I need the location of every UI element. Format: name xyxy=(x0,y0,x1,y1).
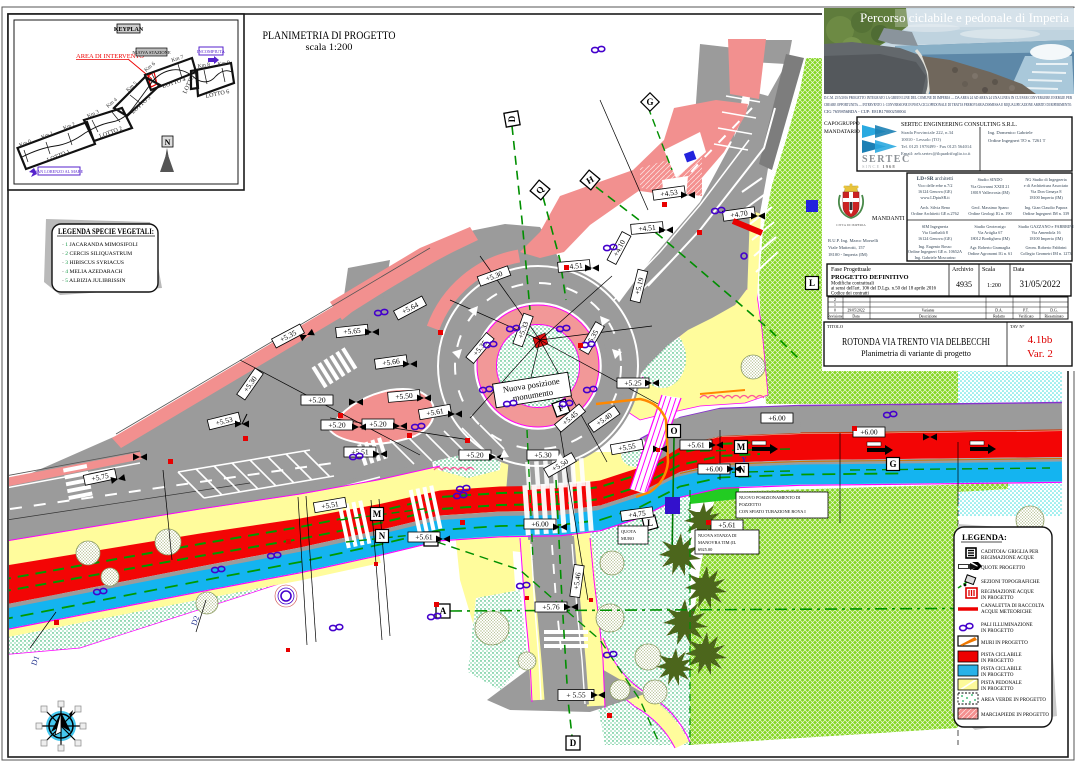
svg-text:Geom. Roberto Fabbrini: Geom. Roberto Fabbrini xyxy=(1025,245,1067,250)
svg-text:Var. 2: Var. 2 xyxy=(1027,348,1053,360)
svg-text:CON SFIATO TUBAZIONE ROYA I: CON SFIATO TUBAZIONE ROYA I xyxy=(739,509,806,514)
svg-text:Via Amendola 16: Via Amendola 16 xyxy=(1031,230,1060,235)
svg-text:www.LDpiuSR.it: www.LDpiuSR.it xyxy=(920,195,950,200)
svg-text:+5.20: +5.20 xyxy=(369,420,387,429)
svg-text:MANDATARIO: MANDATARIO xyxy=(824,129,860,135)
svg-text:POZZETTO: POZZETTO xyxy=(739,502,761,507)
svg-text:+6.00: +6.00 xyxy=(768,414,786,423)
svg-text:18012 Bordighera (IM): 18012 Bordighera (IM) xyxy=(970,236,1010,241)
svg-text:M: M xyxy=(373,509,382,519)
svg-text:e di Architettura Associato: e di Architettura Associato xyxy=(1024,183,1069,188)
svg-text:IN PROGETTO: IN PROGETTO xyxy=(981,687,1014,692)
svg-text:MURO: MURO xyxy=(621,536,634,541)
svg-text:29/05/2022: 29/05/2022 xyxy=(847,309,864,313)
svg-text:AREA VERDE IN PROGETTO: AREA VERDE IN PROGETTO xyxy=(981,698,1046,703)
svg-text:Ing. Domenico Gabriele: Ing. Domenico Gabriele xyxy=(988,130,1033,135)
svg-text:Ordine Ingegneri GE n. 10652A: Ordine Ingegneri GE n. 10652A xyxy=(908,249,962,254)
svg-text:+5.20: +5.20 xyxy=(328,421,346,430)
svg-text:Data: Data xyxy=(1013,267,1025,273)
svg-text:scala 1:200: scala 1:200 xyxy=(306,42,354,52)
svg-text:1: 1 xyxy=(834,303,836,307)
svg-text:L: L xyxy=(809,278,815,288)
svg-text:Studio GAZZANO e FABBRINI: Studio GAZZANO e FABBRINI xyxy=(1018,224,1074,229)
svg-text:NUOVO POSIZIONAMENTO DI: NUOVO POSIZIONAMENTO DI xyxy=(739,495,801,500)
svg-text:Y: Y xyxy=(741,456,746,464)
svg-text:PISTA CICLABILE: PISTA CICLABILE xyxy=(981,653,1022,658)
svg-text:Vico delle erbe n.7/2: Vico delle erbe n.7/2 xyxy=(918,183,953,188)
svg-text:INCOMPIUTA: INCOMPIUTA xyxy=(197,49,226,54)
svg-text:Archivio: Archivio xyxy=(952,267,973,273)
svg-text:R.U.P. Ing. Marco Morselli: R.U.P. Ing. Marco Morselli xyxy=(828,238,879,243)
svg-text:NUOVA STANZA DI: NUOVA STANZA DI xyxy=(698,533,737,538)
svg-text:P.T.: P.T. xyxy=(1023,309,1029,313)
svg-text:CITTA DI IMPERIA: CITTA DI IMPERIA xyxy=(836,223,866,227)
svg-text:SINCE 1968: SINCE 1968 xyxy=(862,164,896,169)
svg-text:Via Giovanni XXIII 21: Via Giovanni XXIII 21 xyxy=(971,184,1010,189)
svg-text:Ordine Ingegneri IM n. 339: Ordine Ingegneri IM n. 339 xyxy=(1023,211,1069,216)
svg-text:D: D xyxy=(507,115,517,122)
svg-text:+5.76: +5.76 xyxy=(542,603,560,612)
svg-text:SERTEC ENGINEERING CONSULTIN: SERTEC ENGINEERING CONSULTING S.R.L. xyxy=(901,121,1017,128)
svg-text:NG Studio di Ingegneria: NG Studio di Ingegneria xyxy=(1025,177,1066,182)
svg-text:+5.61: +5.61 xyxy=(415,533,433,542)
svg-text:KEYPLAN: KEYPLAN xyxy=(114,27,144,33)
svg-text:CAPOGRUPPO: CAPOGRUPPO xyxy=(824,121,860,127)
svg-text:+5.20: +5.20 xyxy=(308,396,326,405)
svg-text:D: D xyxy=(570,738,577,748)
svg-text:PROGETTO DEFINITIVO: PROGETTO DEFINITIVO xyxy=(831,274,909,281)
svg-text:1:200: 1:200 xyxy=(987,283,1001,289)
svg-text:IN PROGETTO: IN PROGETTO xyxy=(981,673,1014,678)
svg-text:N: N xyxy=(379,531,386,541)
svg-text:SIM Ingegneria: SIM Ingegneria xyxy=(922,224,949,229)
svg-text:Fase Progettuale: Fase Progettuale xyxy=(831,267,871,273)
svg-text:IN PROGETTO: IN PROGETTO xyxy=(981,629,1014,634)
svg-text:Scala: Scala xyxy=(982,267,995,273)
svg-text:16124 Genova (GE): 16124 Genova (GE) xyxy=(918,236,953,241)
svg-text:N: N xyxy=(165,138,171,147)
svg-text:ROTONDA VIA TRENTO VIA DELBEC: ROTONDA VIA TRENTO VIA DELBECCHI xyxy=(842,337,990,348)
svg-text:4.1bb: 4.1bb xyxy=(1028,334,1053,346)
svg-text:G: G xyxy=(889,459,896,469)
svg-text:REGIMAZIONE ACQUE: REGIMAZIONE ACQUE xyxy=(981,590,1034,595)
svg-text:Ing. Gian Claudio Papora: Ing. Gian Claudio Papora xyxy=(1025,205,1068,210)
svg-text:MURI IN PROGETTO: MURI IN PROGETTO xyxy=(981,641,1028,646)
svg-text:18100 - Imperia (IM): 18100 - Imperia (IM) xyxy=(828,252,868,257)
svg-text:+5.20: +5.20 xyxy=(466,451,484,460)
svg-text:Studio Geotecnigo: Studio Geotecnigo xyxy=(974,224,1005,229)
svg-text:- 1 JACARANDA MIMOSIFOLI: - 1 JACARANDA MIMOSIFOLI xyxy=(62,242,138,248)
svg-text:Ing. Gabriele Moscarino: Ing. Gabriele Moscarino xyxy=(914,255,955,260)
svg-text:0: 0 xyxy=(834,309,836,313)
svg-text:Email: zeb.sertec@ilquadrifogl: Email: zeb.sertec@ilquadrifoglio.to.it xyxy=(901,151,971,156)
svg-text:6925.00: 6925.00 xyxy=(698,547,713,552)
svg-text:G: G xyxy=(646,97,653,107)
svg-text:Variante: Variante xyxy=(922,309,935,313)
svg-text:18100 Imperia (IM): 18100 Imperia (IM) xyxy=(1029,195,1063,200)
svg-text:MARCIAPIEDE IN PROGETTO: MARCIAPIEDE IN PROGETTO xyxy=(981,713,1049,718)
svg-text:2: 2 xyxy=(834,298,836,302)
svg-text:PALI ILLUMINAZIONE: PALI ILLUMINAZIONE xyxy=(981,623,1033,628)
svg-text:Verificato: Verificato xyxy=(1019,315,1034,319)
svg-text:+5.61: +5.61 xyxy=(687,441,705,450)
svg-text:+5.65: +5.65 xyxy=(343,326,361,337)
svg-text:+5.61: +5.61 xyxy=(718,521,736,530)
svg-text:Redatto: Redatto xyxy=(993,315,1005,319)
svg-text:D.C.M. 25/5/2016 PROGETTO INTE: D.C.M. 25/5/2016 PROGETTO INTEGRATO LA G… xyxy=(824,95,1072,100)
svg-text:TITOLO: TITOLO xyxy=(827,324,844,329)
svg-text:LEGENDA SPECIE VEGETALI:: LEGENDA SPECIE VEGETALI: xyxy=(58,227,154,236)
svg-text:Ordine Ingegneri TO n. 7261 T: Ordine Ingegneri TO n. 7261 T xyxy=(988,138,1046,143)
svg-text:Riesaminato: Riesaminato xyxy=(1045,315,1064,319)
svg-text:D.A.: D.A. xyxy=(995,309,1002,313)
svg-text:+5.30: +5.30 xyxy=(534,451,552,460)
svg-text:31/05/2022: 31/05/2022 xyxy=(1019,279,1060,289)
svg-text:CANALETTA DI RACCOLTA: CANALETTA DI RACCOLTA xyxy=(981,604,1045,609)
svg-text:Data: Data xyxy=(852,315,859,319)
svg-text:Via Artiglia 67: Via Artiglia 67 xyxy=(978,230,1003,235)
svg-text:Ordine Geologi IG n. 190: Ordine Geologi IG n. 190 xyxy=(968,211,1011,216)
svg-text:O: O xyxy=(670,426,677,436)
svg-text:IN PROGETTO: IN PROGETTO xyxy=(981,659,1014,664)
svg-text:Via Don Genaya 8: Via Don Genaya 8 xyxy=(1030,189,1061,194)
svg-text:+6.00: +6.00 xyxy=(705,465,723,474)
svg-text:Planimetria di variante di pro: Planimetria di variante di progetto xyxy=(861,349,971,358)
svg-text:+5.25: +5.25 xyxy=(624,379,642,388)
svg-text:Revisione: Revisione xyxy=(827,315,843,319)
svg-text:ACQUE METEORICHE: ACQUE METEORICHE xyxy=(981,610,1032,615)
svg-text:PISTA CICLABILE: PISTA CICLABILE xyxy=(981,667,1022,672)
svg-text:PISTA PEDONALE: PISTA PEDONALE xyxy=(981,681,1022,686)
svg-text:CIG 7659856BDA - CUP: E81B1700: CIG 7659856BDA - CUP: E81B17000250004 xyxy=(824,109,907,114)
svg-text:MANOVRA TIM (IL: MANOVRA TIM (IL xyxy=(698,540,737,545)
svg-text:Ordine Agronomi IG n. 61: Ordine Agronomi IG n. 61 xyxy=(968,251,1013,256)
svg-text:- 5 ALBIZIA JULIBRISSIN: - 5 ALBIZIA JULIBRISSIN xyxy=(62,278,126,284)
svg-text:LEGENDA:: LEGENDA: xyxy=(962,532,1007,542)
svg-text:Arch. Silvia Reno: Arch. Silvia Reno xyxy=(920,205,950,210)
svg-text:Codice dei contratti: Codice dei contratti xyxy=(831,292,869,297)
svg-text:Agr. Roberto Gramaglia: Agr. Roberto Gramaglia xyxy=(970,245,1011,250)
svg-text:+5.50: +5.50 xyxy=(395,391,413,402)
svg-text:MANDANTI: MANDANTI xyxy=(872,216,905,222)
svg-text:QUOTA: QUOTA xyxy=(621,529,637,534)
svg-text:Descrizione: Descrizione xyxy=(919,315,937,319)
svg-text:CADITOIA/ GRIGLIA PER: CADITOIA/ GRIGLIA PER xyxy=(981,550,1039,555)
svg-text:Studio SINDO: Studio SINDO xyxy=(978,177,1003,182)
svg-text:Ordine Architetti GE n.2762: Ordine Architetti GE n.2762 xyxy=(911,211,959,216)
svg-text:SEZIONI TOPOGRAFICHE: SEZIONI TOPOGRAFICHE xyxy=(981,580,1040,585)
svg-text:Collegio Geometri IM n. 1273: Collegio Geometri IM n. 1273 xyxy=(1020,251,1071,256)
svg-text:SAN LORENZO AL MARE: SAN LORENZO AL MARE xyxy=(35,169,84,174)
svg-text:18100 Imperia (IM): 18100 Imperia (IM) xyxy=(1029,236,1063,241)
svg-text:+4.51: +4.51 xyxy=(638,223,656,234)
svg-text:Percorso ciclabile e pedonale: Percorso ciclabile e pedonale di Imperia xyxy=(860,10,1069,25)
svg-text:Via Garibaldi 8: Via Garibaldi 8 xyxy=(922,230,948,235)
svg-text:+6.00: +6.00 xyxy=(860,428,878,437)
svg-text:- 4 MELIA AZEDARACH: - 4 MELIA AZEDARACH xyxy=(62,269,122,275)
svg-text:Tel. 0125 1978499 - Fax 0125 5: Tel. 0125 1978499 - Fax 0125 564014 xyxy=(901,144,972,149)
svg-text:Geol. Massimo Spano: Geol. Massimo Spano xyxy=(971,205,1008,210)
svg-text:CREARE OPPORTUNITA — INTERVENT: CREARE OPPORTUNITA — INTERVENTO 1: CONVE… xyxy=(824,102,1072,107)
svg-text:QUOTE PROGETTO: QUOTE PROGETTO xyxy=(981,566,1026,571)
svg-text:10010 - Lessolo (TO): 10010 - Lessolo (TO) xyxy=(901,137,941,142)
svg-text:- 2 CERCIS SILIQUASTRUM: - 2 CERCIS SILIQUASTRUM xyxy=(62,251,132,257)
svg-text:16124 Genova (GE): 16124 Genova (GE) xyxy=(918,189,953,194)
svg-text:18019 Vallecrosia (IM): 18019 Vallecrosia (IM) xyxy=(971,190,1011,195)
svg-text:4935: 4935 xyxy=(956,280,972,289)
svg-text:LD+SR architetti: LD+SR architetti xyxy=(917,176,954,182)
svg-text:D.G.: D.G. xyxy=(1050,309,1057,313)
svg-text:TAV N°: TAV N° xyxy=(1010,324,1025,329)
svg-text:PLANIMETRIA DI PROGETTO: PLANIMETRIA DI PROGETTO xyxy=(263,28,396,42)
svg-text:NUOVA STAZIONE: NUOVA STAZIONE xyxy=(132,50,170,55)
svg-text:REGIMAZIONE ACQUE: REGIMAZIONE ACQUE xyxy=(981,556,1034,561)
svg-text:+6.00: +6.00 xyxy=(531,520,549,529)
svg-text:- 3 HIBISCUS SYRIACUS: - 3 HIBISCUS SYRIACUS xyxy=(62,260,124,266)
svg-text:IN PROGETTO: IN PROGETTO xyxy=(981,596,1014,601)
svg-text:+ 5.55: + 5.55 xyxy=(566,691,585,700)
svg-text:M: M xyxy=(737,442,746,452)
